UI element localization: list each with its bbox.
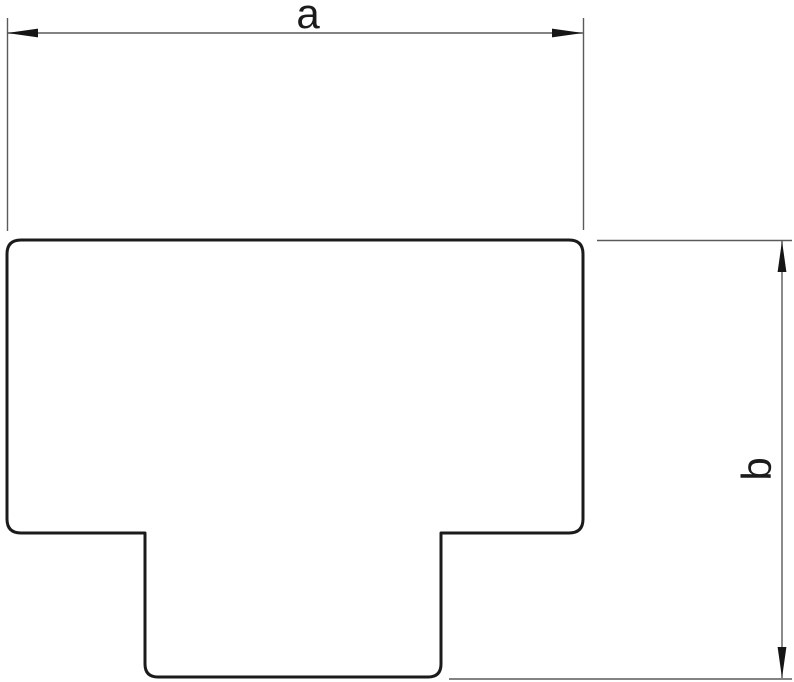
- dimension-b-arrow-bottom: [778, 647, 787, 678]
- dimension-a-arrow-left: [7, 29, 38, 38]
- technical-drawing-page: a b: [0, 0, 794, 682]
- dimension-b-arrow-top: [778, 241, 787, 272]
- dimension-a-label: a: [296, 0, 320, 37]
- dimension-b-label: b: [733, 457, 780, 480]
- dimension-a: a: [7, 0, 584, 231]
- dimension-a-arrow-right: [552, 29, 583, 38]
- t-piece-dimension-drawing: a b: [0, 0, 794, 682]
- t-piece-outline-shape: [7, 240, 583, 677]
